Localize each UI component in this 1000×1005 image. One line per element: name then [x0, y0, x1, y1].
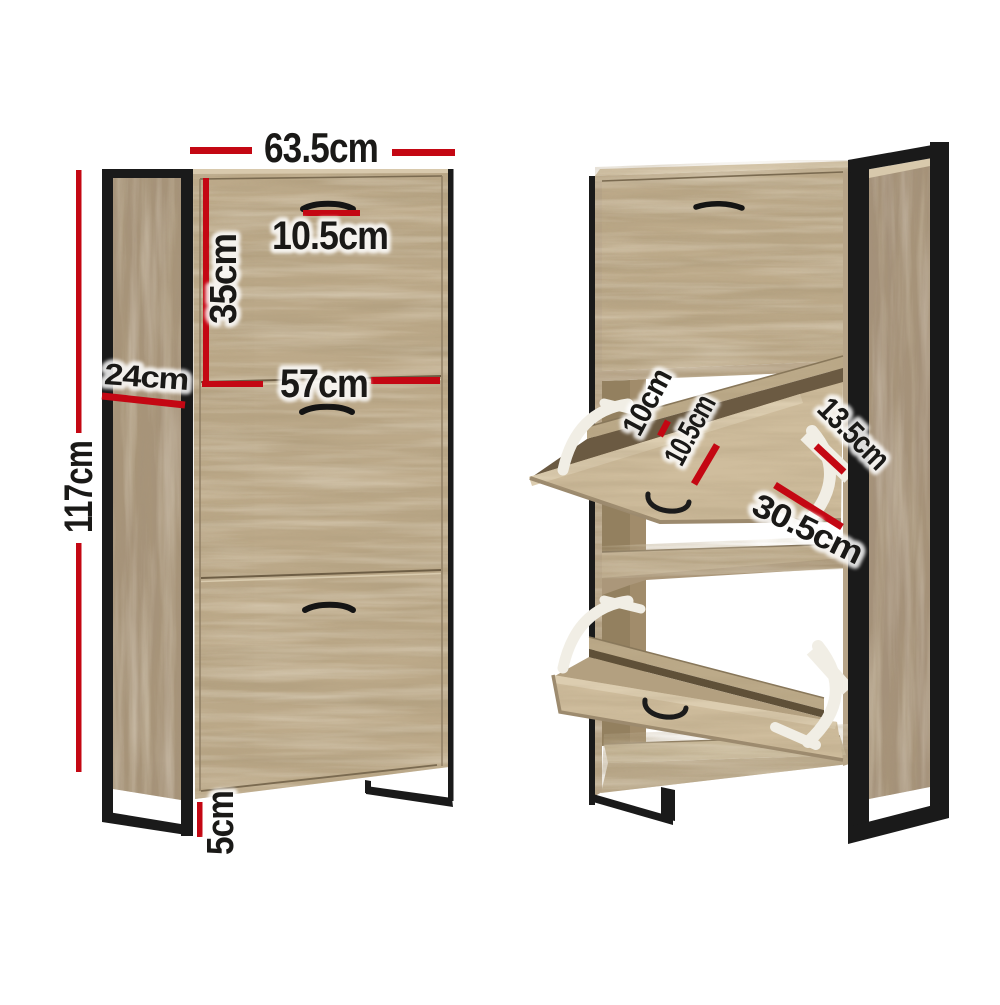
svg-text:117cm: 117cm: [57, 441, 101, 533]
svg-text:63.5cm: 63.5cm: [264, 124, 378, 171]
svg-text:35cm: 35cm: [203, 234, 245, 324]
svg-text:5cm: 5cm: [200, 791, 242, 855]
svg-text:24cm: 24cm: [103, 358, 189, 397]
svg-text:10.5cm: 10.5cm: [272, 214, 388, 258]
svg-text:57cm: 57cm: [280, 362, 368, 406]
